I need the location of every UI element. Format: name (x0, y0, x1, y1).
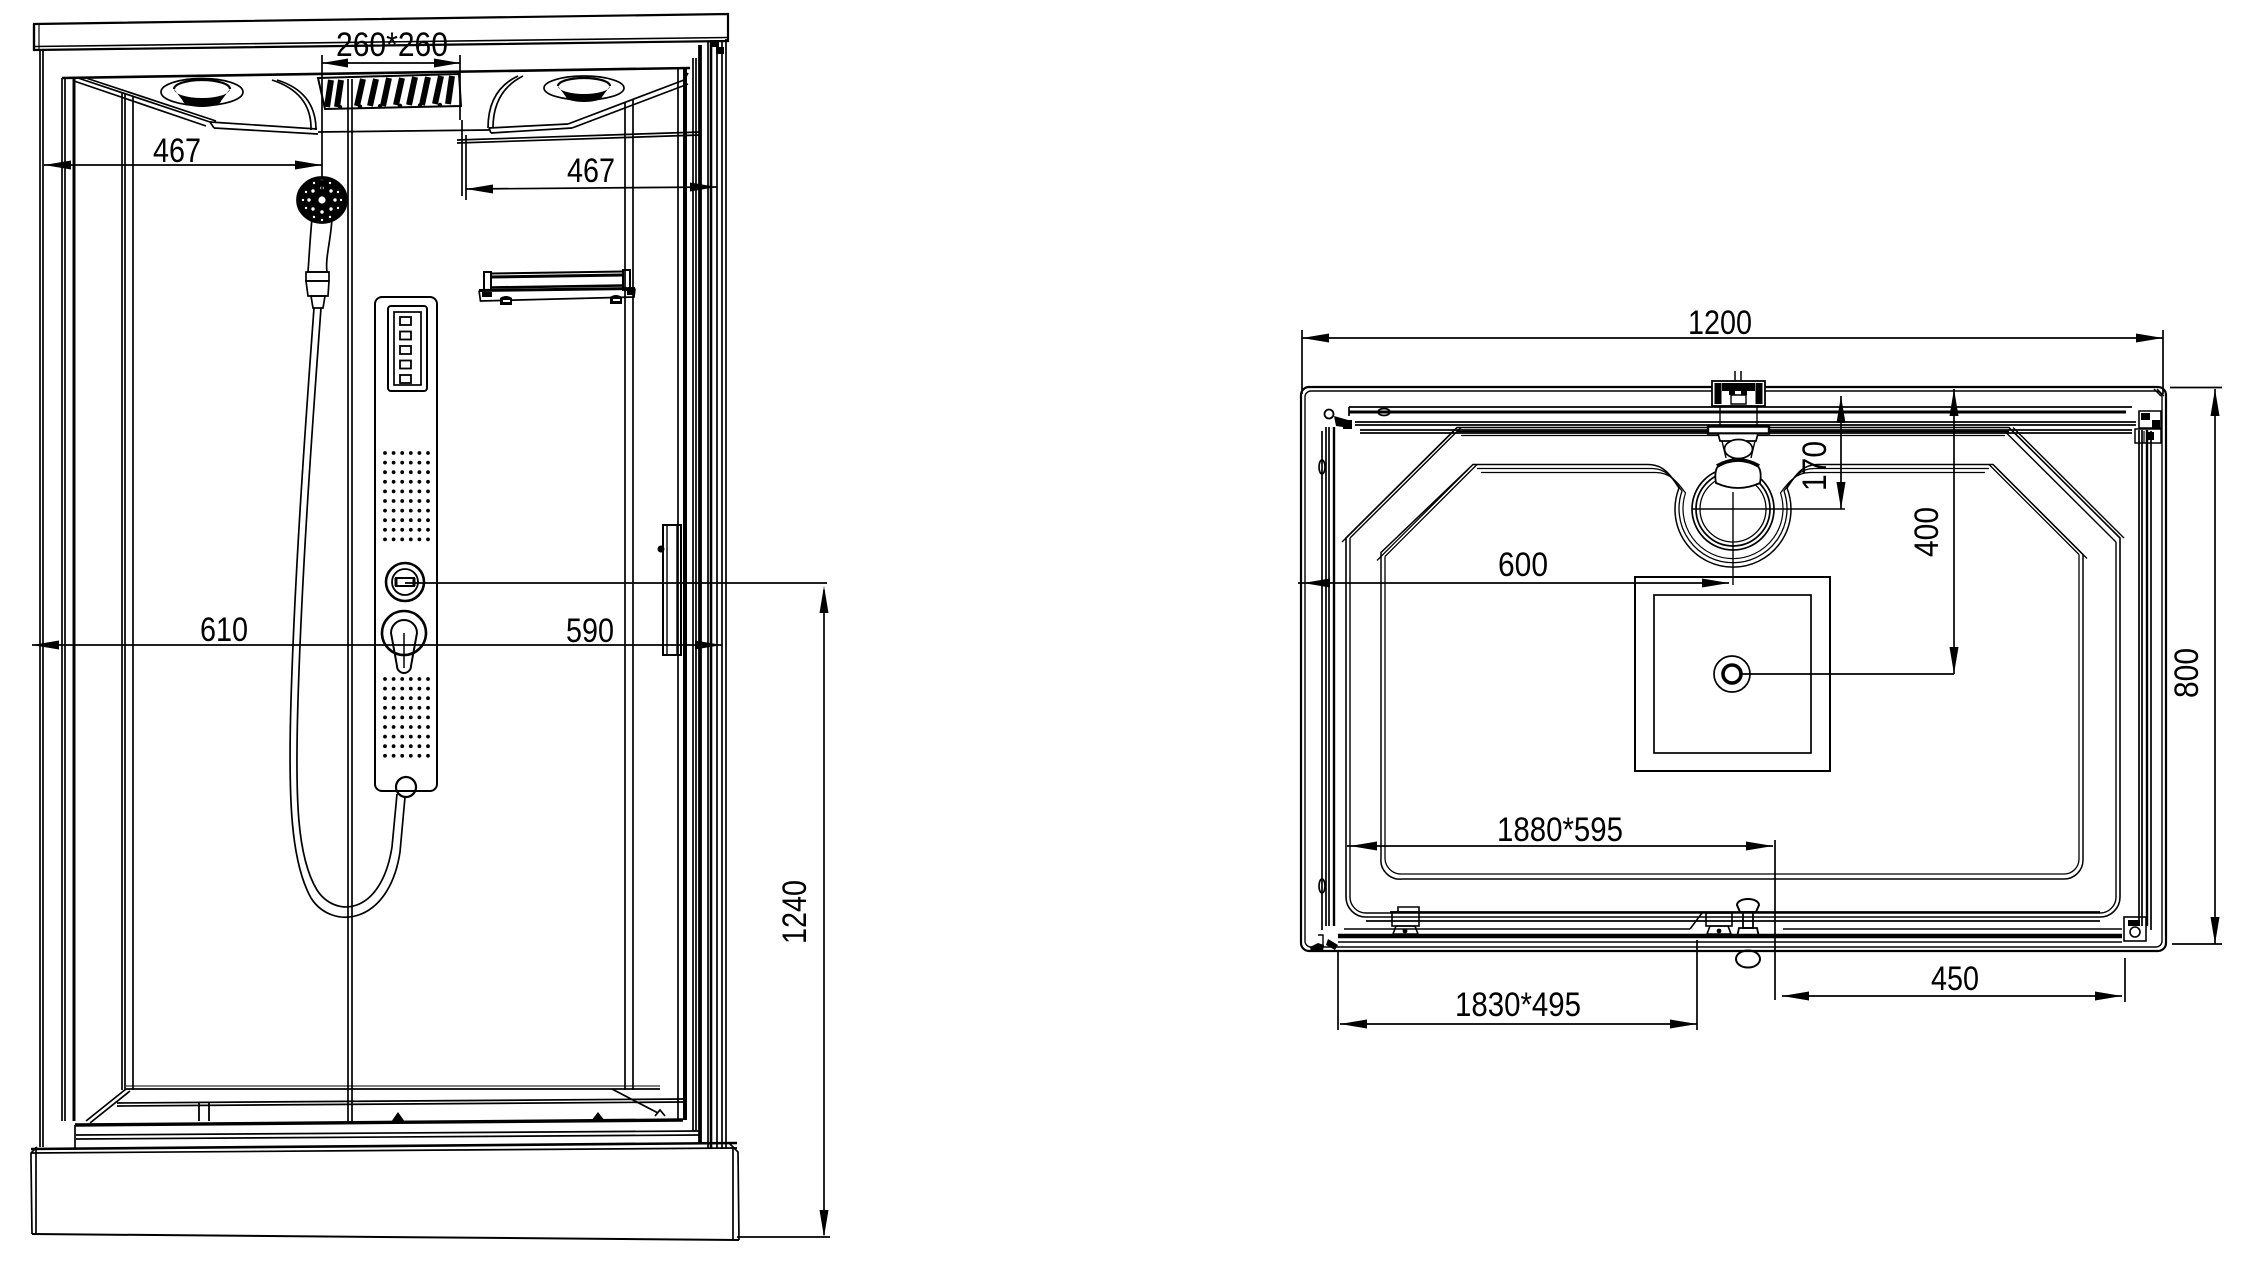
svg-text:467: 467 (153, 132, 201, 170)
svg-text:467: 467 (567, 152, 615, 190)
svg-text:600: 600 (1498, 546, 1548, 584)
svg-text:1200: 1200 (1688, 304, 1752, 342)
svg-text:800: 800 (2168, 648, 2206, 698)
svg-text:170: 170 (1796, 441, 1834, 491)
svg-text:590: 590 (566, 612, 614, 650)
svg-text:610: 610 (200, 611, 248, 649)
svg-text:260*260: 260*260 (336, 26, 448, 64)
svg-text:450: 450 (1931, 960, 1979, 998)
svg-text:1240: 1240 (776, 880, 814, 944)
svg-text:1880*595: 1880*595 (1497, 811, 1623, 849)
svg-text:1830*495: 1830*495 (1455, 986, 1581, 1024)
svg-text:400: 400 (1908, 507, 1946, 557)
